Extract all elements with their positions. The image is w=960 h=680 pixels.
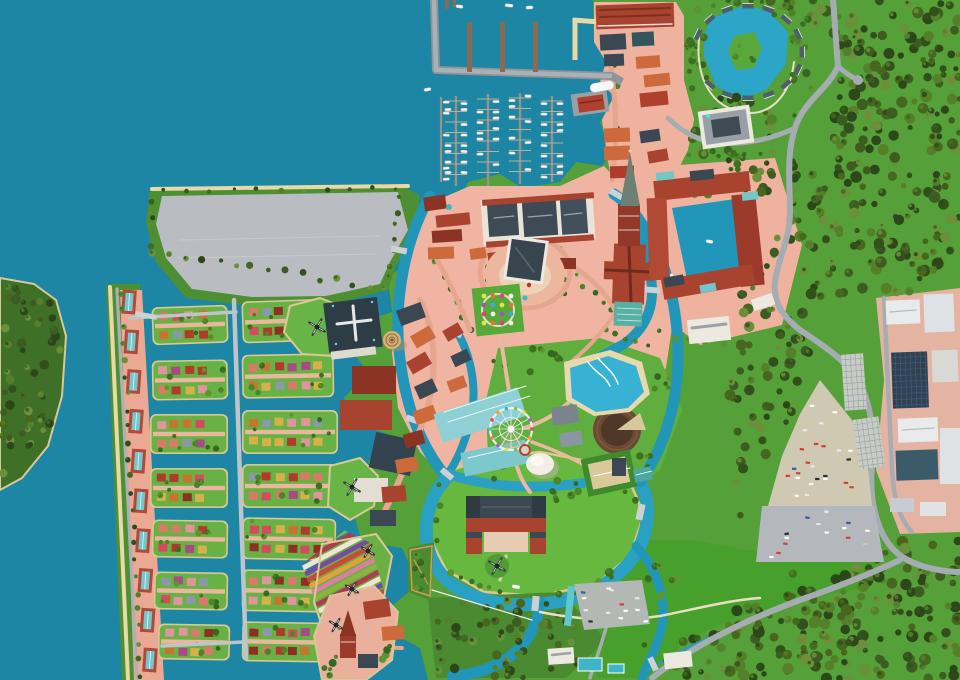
hotel-europe-teal-roof bbox=[742, 191, 759, 201]
boat bbox=[526, 6, 533, 10]
palace-wing-roof bbox=[530, 532, 546, 538]
south-building bbox=[381, 625, 404, 641]
boat bbox=[505, 4, 513, 8]
resort-map bbox=[0, 0, 960, 680]
carousel bbox=[520, 445, 530, 455]
pool bbox=[446, 204, 452, 210]
guest-pier bbox=[573, 20, 600, 22]
park-building bbox=[612, 458, 626, 476]
event-dome-cap bbox=[530, 456, 544, 466]
warehouse bbox=[639, 91, 668, 108]
harbor-building bbox=[604, 54, 624, 67]
stadhuis-roof bbox=[507, 239, 546, 281]
garden-plaza bbox=[472, 284, 525, 337]
gate-tower bbox=[340, 634, 356, 658]
factory-solar-roof bbox=[891, 351, 929, 408]
warehouse bbox=[931, 350, 958, 383]
spire-finial bbox=[629, 150, 632, 153]
residential-island bbox=[150, 414, 228, 454]
resort-map-canvas bbox=[0, 0, 960, 680]
hotel-amsterdam-roof bbox=[560, 197, 588, 235]
cathedral-ridge bbox=[606, 270, 652, 272]
south-building bbox=[358, 654, 378, 668]
town-building bbox=[428, 247, 454, 260]
plaza-fountain bbox=[523, 296, 528, 301]
swimming-pool bbox=[608, 664, 624, 673]
meadow-building bbox=[663, 651, 693, 670]
residential-island bbox=[242, 353, 335, 399]
hotel-europe-wing bbox=[647, 198, 670, 281]
greenhouse bbox=[841, 353, 867, 410]
reclaimed-lot-pavement bbox=[156, 192, 408, 297]
shed bbox=[890, 498, 914, 512]
palace-pavilion bbox=[466, 496, 480, 518]
harbor-building bbox=[632, 31, 655, 46]
road-culdesac-end bbox=[853, 75, 863, 85]
residential-island bbox=[152, 359, 229, 400]
harbor-building bbox=[600, 33, 627, 50]
palace-wing-roof bbox=[466, 532, 482, 538]
town-building bbox=[432, 229, 463, 243]
warehouse bbox=[940, 428, 960, 484]
park-building bbox=[551, 404, 579, 425]
residential-island bbox=[152, 519, 229, 558]
boat bbox=[456, 5, 463, 9]
palace-body bbox=[466, 518, 546, 532]
theater-building bbox=[340, 400, 392, 430]
pier bbox=[445, 0, 449, 9]
palace-pavilion bbox=[532, 496, 546, 518]
spa-light bbox=[706, 114, 710, 118]
street-building bbox=[381, 485, 406, 503]
theater-building bbox=[352, 366, 396, 394]
cathedral-tower bbox=[618, 204, 640, 246]
residential-island bbox=[242, 410, 338, 454]
shed bbox=[920, 502, 946, 516]
small-parking bbox=[574, 580, 650, 630]
hotel-annex bbox=[687, 316, 731, 344]
pier bbox=[467, 22, 472, 72]
main-parking-lower bbox=[756, 506, 884, 562]
warehouse bbox=[604, 128, 630, 143]
roof-light bbox=[371, 301, 373, 303]
hotel-amsterdam-roof bbox=[487, 201, 519, 237]
south-building bbox=[363, 598, 391, 619]
pier bbox=[453, 0, 456, 7]
cathedral-ridge bbox=[629, 246, 631, 302]
residential-island bbox=[154, 571, 229, 610]
bridge bbox=[531, 596, 539, 612]
pier bbox=[533, 22, 538, 72]
roof-light bbox=[335, 343, 337, 345]
pier bbox=[500, 22, 505, 72]
swimming-pool bbox=[578, 658, 602, 671]
warehouse bbox=[636, 55, 661, 69]
roof-light bbox=[373, 339, 375, 341]
warehouse bbox=[604, 146, 630, 161]
residential-island bbox=[150, 468, 228, 508]
roof-light bbox=[332, 305, 334, 307]
palace-court bbox=[484, 532, 528, 552]
observation-tower-top bbox=[391, 339, 394, 342]
warehouse bbox=[923, 293, 954, 332]
warehouse bbox=[895, 449, 938, 480]
residential-island bbox=[151, 305, 228, 346]
stadhuis-entrance bbox=[527, 283, 531, 287]
residential-island bbox=[242, 464, 338, 508]
street-building bbox=[370, 510, 396, 526]
shop-row bbox=[469, 247, 486, 260]
hotel-amsterdam-roof bbox=[522, 199, 558, 237]
